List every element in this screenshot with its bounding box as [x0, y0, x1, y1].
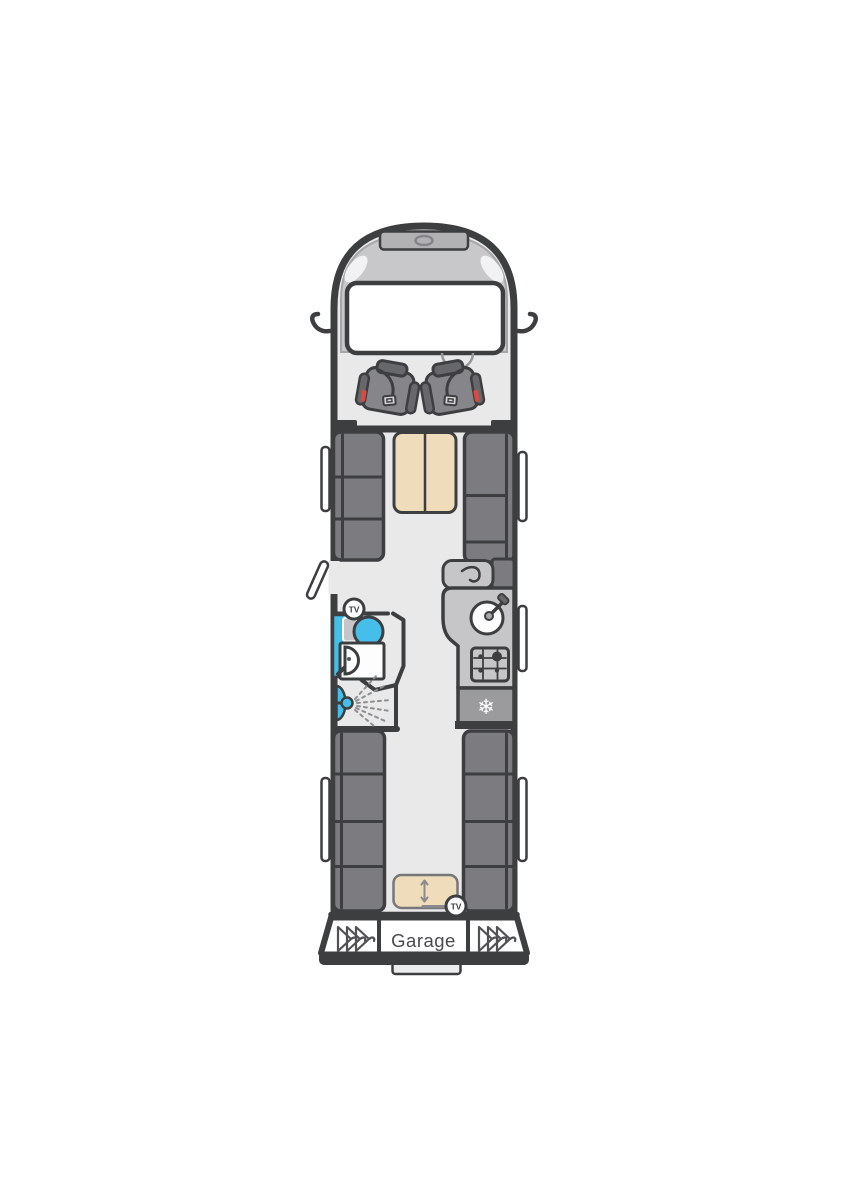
window-front-right [519, 452, 527, 521]
hob-burner-dot [478, 654, 482, 658]
hob-burner-dot [495, 668, 499, 672]
window-front-left [322, 447, 330, 511]
window-kitchen-right [519, 606, 527, 671]
tv-badge-rear-label: TV [451, 902, 462, 912]
rear-storage: Garage [319, 915, 529, 975]
rear-flare-wall-left [321, 916, 332, 953]
snowflake-icon: ❄ [477, 695, 495, 719]
worktop-flap [443, 561, 493, 589]
corner-cabinet [492, 559, 514, 590]
rear-sofa-right [464, 731, 515, 911]
seatbelt-buckle [383, 395, 396, 405]
seatbelt-buckle [444, 395, 457, 405]
rear-flare-wall-right [517, 916, 528, 953]
windscreen [347, 283, 503, 353]
garage-label: Garage [391, 930, 456, 951]
wardrobe-hangers-icon-left [338, 927, 374, 951]
rear-bumper-wall [319, 952, 529, 966]
window-rear-left [322, 778, 330, 861]
hob-burner-dot [478, 668, 482, 672]
front-sofa-left [334, 432, 384, 560]
roof-vent [380, 232, 468, 250]
tv-badge-front-label: TV [349, 605, 360, 615]
window-rear-right [519, 778, 527, 861]
kitchen-end-wall [455, 721, 514, 729]
wardrobe-hangers-icon-right [479, 927, 515, 951]
hob-icon [472, 648, 509, 681]
washbasin-icon [345, 647, 359, 674]
motorhome-floorplan: TV ❄ [0, 0, 848, 1200]
basin-drain [347, 657, 351, 661]
floorplan-canvas: TV ❄ [0, 0, 848, 1200]
front-table [394, 433, 456, 513]
hob-top [472, 648, 509, 681]
entry-door [306, 560, 330, 600]
tap-base [485, 612, 493, 620]
door-opening-gap [329, 561, 340, 594]
tv-badge-rear-group: TV [446, 896, 466, 916]
hob-burner-large [492, 652, 502, 662]
rear-sofa-left [334, 731, 385, 911]
shower-head-icon [342, 698, 353, 709]
